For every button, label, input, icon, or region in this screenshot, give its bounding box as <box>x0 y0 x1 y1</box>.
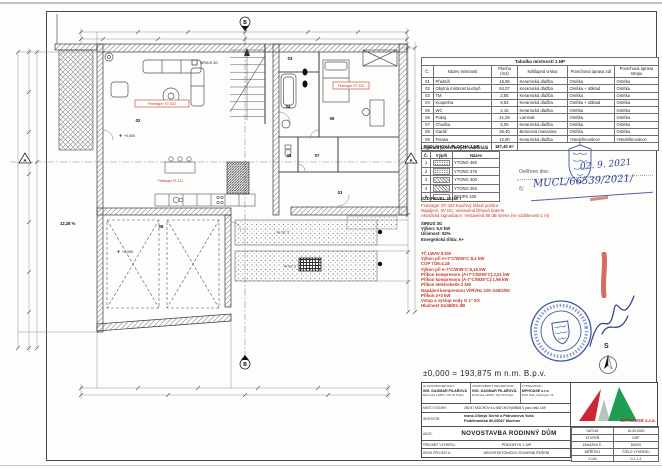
room-table-title: Tabulka místností 1.NP <box>422 58 659 66</box>
scan-edge-top <box>0 2 662 4</box>
legend-row: 2 YTONG 375 <box>422 167 500 176</box>
svg-text:03: 03 <box>288 56 293 61</box>
note-line: Energetická třída: A+ <box>421 237 464 242</box>
room-table-header: Nášlapná vrstva <box>518 65 568 78</box>
north-arrow-icon <box>596 352 620 376</box>
table-row: 03 TM 2,55 Keramická dlažba Omítka Omítk… <box>422 92 659 99</box>
drawing-meta-table: DATUM 15.09.2020 STUPEŇ DSP ZAKÁZKA Č. 5… <box>571 427 659 462</box>
legend-title: Legenda povrchových materiálů <box>421 145 488 150</box>
legend-row: 1 YTONG 450 <box>422 159 500 168</box>
svg-text:01: 01 <box>338 190 343 195</box>
terrace-area <box>59 50 93 150</box>
floor-plan: Firetrager ST-422 SIRIUS 3G Firetrager S… <box>8 12 418 459</box>
svg-text:08: 08 <box>159 224 164 229</box>
table-row: 06 Pokoj 21,29 Laminát Omítka Omítka <box>422 114 659 121</box>
scan-edge-bottom <box>0 465 662 466</box>
druh-row: DRUH PROJEKTU: ARCHITEKTONICKO-STAVEBNÍ … <box>422 449 570 457</box>
legend-header-row: Č. Výplň Název <box>422 152 500 159</box>
legend-row: 3 YTONG 300 <box>422 176 500 185</box>
driveway-node-2 <box>378 262 382 266</box>
svg-text:07: 07 <box>315 153 320 158</box>
table-row: 08 Garáž 35,40 Betonová mazanina Omítka … <box>422 128 659 135</box>
signature <box>584 284 644 356</box>
projektant-row: HLAVNÍ PROJEKTANT: ING. DAGMAR PILAŘOVÁ … <box>422 383 570 404</box>
svg-text:+0,000: +0,000 <box>122 250 133 254</box>
vypracoval: VYPRACOVAL: SIPHOUSE s.r.o. 5025 Dubí, F… <box>521 383 570 403</box>
company-logo: SIPHOUSE s.r.o. <box>571 383 659 427</box>
room-table-header: Povrchová úprava zdí <box>568 65 615 78</box>
driveway-slope-2: 1,75 % <box>283 264 296 269</box>
svg-text:02: 02 <box>136 118 141 123</box>
svg-text:B: B <box>243 20 247 26</box>
driveway-slope-1: 1,75 % <box>276 230 289 235</box>
meta-row: MĚŘÍTKO ČÍSLO VÝKRESU <box>571 448 658 455</box>
material-swatch <box>433 185 450 192</box>
drawing-sheet: Firetrager ST-422 SIRIUS 3G Firetrager S… <box>0 0 662 468</box>
misto-stavby-row: MÍSTO STAVBY: 250 87 MOCHOV k.ú.MOCHOV(6… <box>422 404 570 413</box>
title-block-left: HLAVNÍ PROJEKTANT: ING. DAGMAR PILAŘOVÁ … <box>422 383 571 457</box>
investor-value: manž.Oliinyk Serhii a Patrusheva Yulia P… <box>464 414 534 424</box>
material-swatch <box>433 160 450 167</box>
stove-label: SIRIUS 3G <box>200 61 218 65</box>
table-row: 09 Terasa 12,80 Keramická dlažba <Nedefi… <box>422 136 659 143</box>
room-table: Tabulka místností 1.NP Č.Název místnosti… <box>421 57 659 151</box>
predmet-row: PŘEDMĚT VÝKRESU: PŮDORYS 1.NP <box>422 441 570 449</box>
zodpovedny-projektant: ZODPOVĚDNÝ PROJEKTANT: ING. DAGMAR PILAŘ… <box>471 383 520 403</box>
detector-label-3: Firetrager ST-422 <box>158 179 183 183</box>
table-row: 05 WC 2,16 Keramická dlažba Omítka Omítk… <box>422 107 659 114</box>
title-block: HLAVNÍ PROJEKTANT: ING. DAGMAR PILAŘOVÁ … <box>421 382 658 458</box>
investor-row: INVESTOR: manž.Oliinyk Serhii a Patrushe… <box>422 413 570 427</box>
detector-label-2: Firetrager ST-422 <box>338 84 365 88</box>
table-row: 07 Chodba 5,05 Keramická dlažba Omítka O… <box>422 121 659 128</box>
svg-text:B: B <box>243 362 247 368</box>
material-swatch <box>433 177 450 184</box>
garage-parking <box>107 220 219 308</box>
meta-row: DATUM 15.09.2020 <box>571 428 658 435</box>
akce-row: AKCE: NOVOSTAVBA RODINNÝ DŮM <box>422 427 570 441</box>
title-block-right: SIPHOUSE s.r.o. DATUM 15.09.2020 STUPEŇ … <box>571 383 659 457</box>
retaining-hatch <box>227 162 249 194</box>
table-row: 04 Koupelna 8,54 Keramická dlažba Omítka… <box>422 99 659 106</box>
detector-label: Firetrager ST-422 <box>148 102 176 106</box>
svg-text:04: 04 <box>286 104 291 109</box>
walkway <box>347 216 397 229</box>
verified-label: Ověřeno dne: <box>519 169 549 175</box>
logo-text: SIPHOUSE s.r.o. <box>620 418 656 423</box>
meta-row: ZAKÁZKA Č. 5/2020 <box>571 441 658 448</box>
legend-row: 4 YTONG 250 <box>422 184 500 193</box>
room-table-header: Povrchová úprava stropu <box>615 65 659 78</box>
garage-slope-label: 12,28 % <box>60 221 76 226</box>
elevation-note: ±0,000 = 193,875 m n.m. B.p.v. <box>423 369 546 378</box>
room-labels: 01 02 03 04 05 06 07 08 <box>136 56 343 229</box>
room-table-body: 01 Předsíň 16,89 Keramická dlažba Omítka… <box>422 78 659 143</box>
legend-body: 1 YTONG 450 2 YTONG 375 3 YTONG 300 <box>422 159 500 202</box>
living-furniture <box>105 53 204 106</box>
detector-notes: Firetrager ST-422 Kouřový hlásič požáruN… <box>421 203 651 219</box>
meta-row: 1:100 D.1.1.2 <box>571 455 658 462</box>
meta-row: STUPEŇ DSP <box>571 434 658 441</box>
driveway-node-1 <box>378 230 382 234</box>
room-table-header: Plocha (m2) <box>492 65 518 78</box>
ref-label: čj: <box>519 186 524 192</box>
room-table-header: Název místnosti <box>434 65 492 78</box>
project-title: NOVOSTAVBA RODINNÝ DŮM <box>449 430 569 437</box>
table-row: 02 Obytná místnost kuchyň 64,07 Keramick… <box>422 85 659 92</box>
legend-table: Č. Výplň Název 1 YTONG 450 2 YTONG 375 <box>421 151 500 202</box>
stove-notes: SIRIUS 3GVýkon: 5,0 kWÚčinnost: 92%Energ… <box>421 221 464 242</box>
north-label: S <box>604 343 609 350</box>
boiler-note: DZD REVEL 2x160 l <box>421 196 461 201</box>
stairs <box>230 48 265 120</box>
hlavni-projektant: HLAVNÍ PROJEKTANT: ING. DAGMAR PILAŘOVÁ … <box>422 383 471 403</box>
svg-text:06: 06 <box>330 116 335 121</box>
room-table-header: Č. <box>422 65 434 78</box>
drain-grate <box>299 258 321 271</box>
svg-text:+0,000: +0,000 <box>124 134 135 138</box>
note-line: Akustická signalizace: Vestavěná 85 dB s… <box>421 213 651 218</box>
table-row: 01 Předsíň 16,89 Keramická dlažba Omítka… <box>422 78 659 85</box>
level-markers: +0,000 +0,000 <box>117 134 135 254</box>
room-table-header-row: Č.Název místnostiPlocha (m2)Nášlapná vrs… <box>422 65 659 78</box>
svg-text:05: 05 <box>287 153 292 158</box>
material-swatch <box>433 168 450 175</box>
